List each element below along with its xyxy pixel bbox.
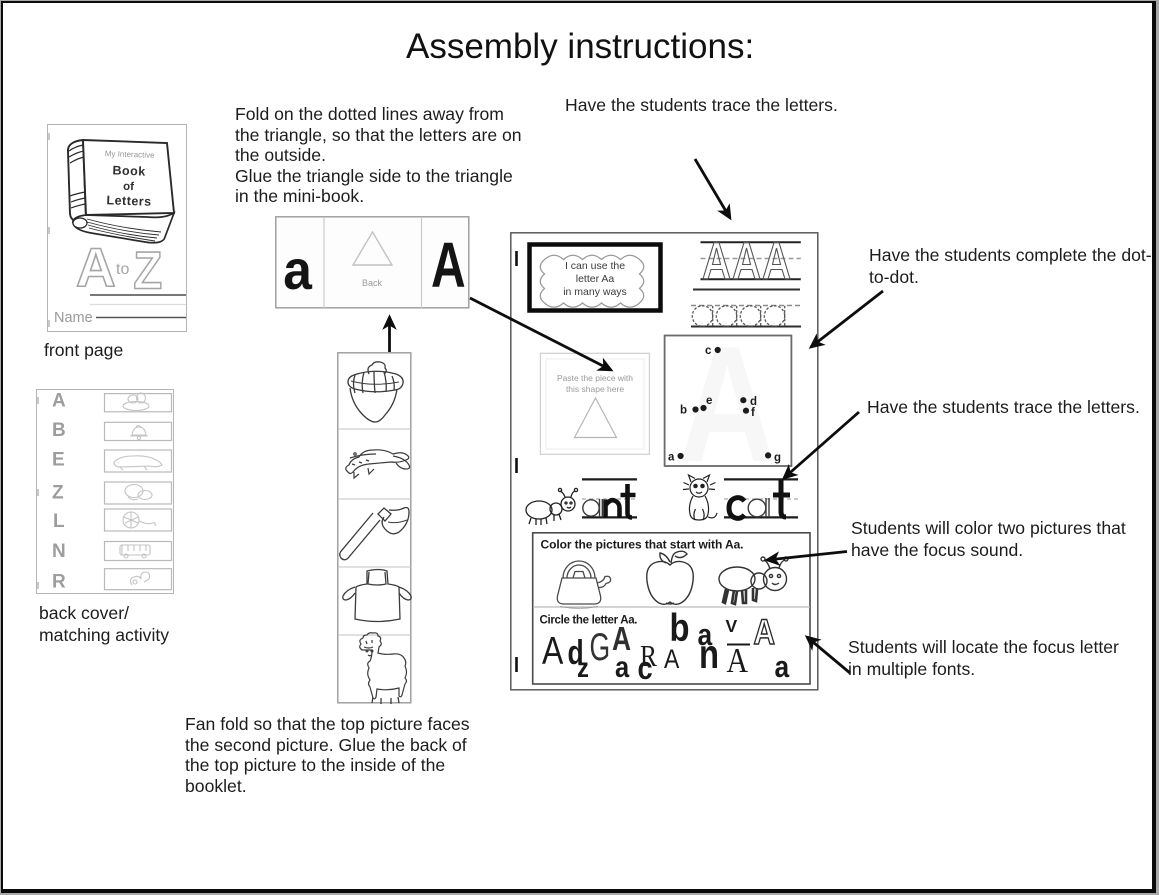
svg-text:to: to <box>116 261 129 278</box>
svg-text:g: g <box>774 452 781 464</box>
svg-text:A: A <box>754 613 775 652</box>
svg-text:A: A <box>664 644 680 674</box>
svg-text:A: A <box>52 391 66 412</box>
svg-text:in many ways: in many ways <box>563 286 627 298</box>
svg-text:n: n <box>699 630 719 676</box>
svg-text:A: A <box>678 311 776 496</box>
svg-text:L: L <box>53 511 65 532</box>
svg-text:A: A <box>542 629 564 673</box>
svg-text:Color the pictures that start: Color the pictures that start with Aa. <box>541 538 744 552</box>
svg-text:Back: Back <box>362 278 383 288</box>
svg-text:a: a <box>775 650 791 684</box>
svg-text:f: f <box>751 407 755 419</box>
svg-text:R: R <box>52 572 66 593</box>
svg-text:this shape here: this shape here <box>566 384 624 394</box>
svg-text:letter Aa: letter Aa <box>576 273 615 285</box>
svg-text:A: A <box>76 236 116 298</box>
svg-text:e: e <box>706 395 712 407</box>
svg-text:Paste the piece with: Paste the piece with <box>557 373 633 383</box>
svg-text:z: z <box>577 651 589 683</box>
svg-text:N: N <box>52 541 66 562</box>
svg-text:Letters: Letters <box>106 193 152 209</box>
svg-text:B: B <box>52 420 66 441</box>
svg-text:c: c <box>705 345 712 357</box>
svg-text:Z: Z <box>133 241 162 300</box>
svg-text:Name: Name <box>54 310 93 326</box>
svg-text:A: A <box>727 642 749 681</box>
svg-text:G: G <box>590 626 611 669</box>
svg-text:I can use the: I can use the <box>565 260 625 272</box>
svg-text:of: of <box>123 181 134 193</box>
svg-text:Z: Z <box>52 483 64 504</box>
svg-text:a: a <box>283 239 313 301</box>
svg-text:c: c <box>638 651 653 687</box>
svg-text:V: V <box>726 616 738 636</box>
svg-text:E: E <box>52 450 65 471</box>
svg-text:b: b <box>680 405 687 417</box>
svg-text:My Interactive: My Interactive <box>105 149 156 160</box>
svg-text:a: a <box>668 452 675 464</box>
svg-text:b: b <box>670 605 690 649</box>
svg-text:Book: Book <box>112 163 146 178</box>
svg-text:a: a <box>615 650 630 683</box>
svg-text:A: A <box>431 229 466 300</box>
